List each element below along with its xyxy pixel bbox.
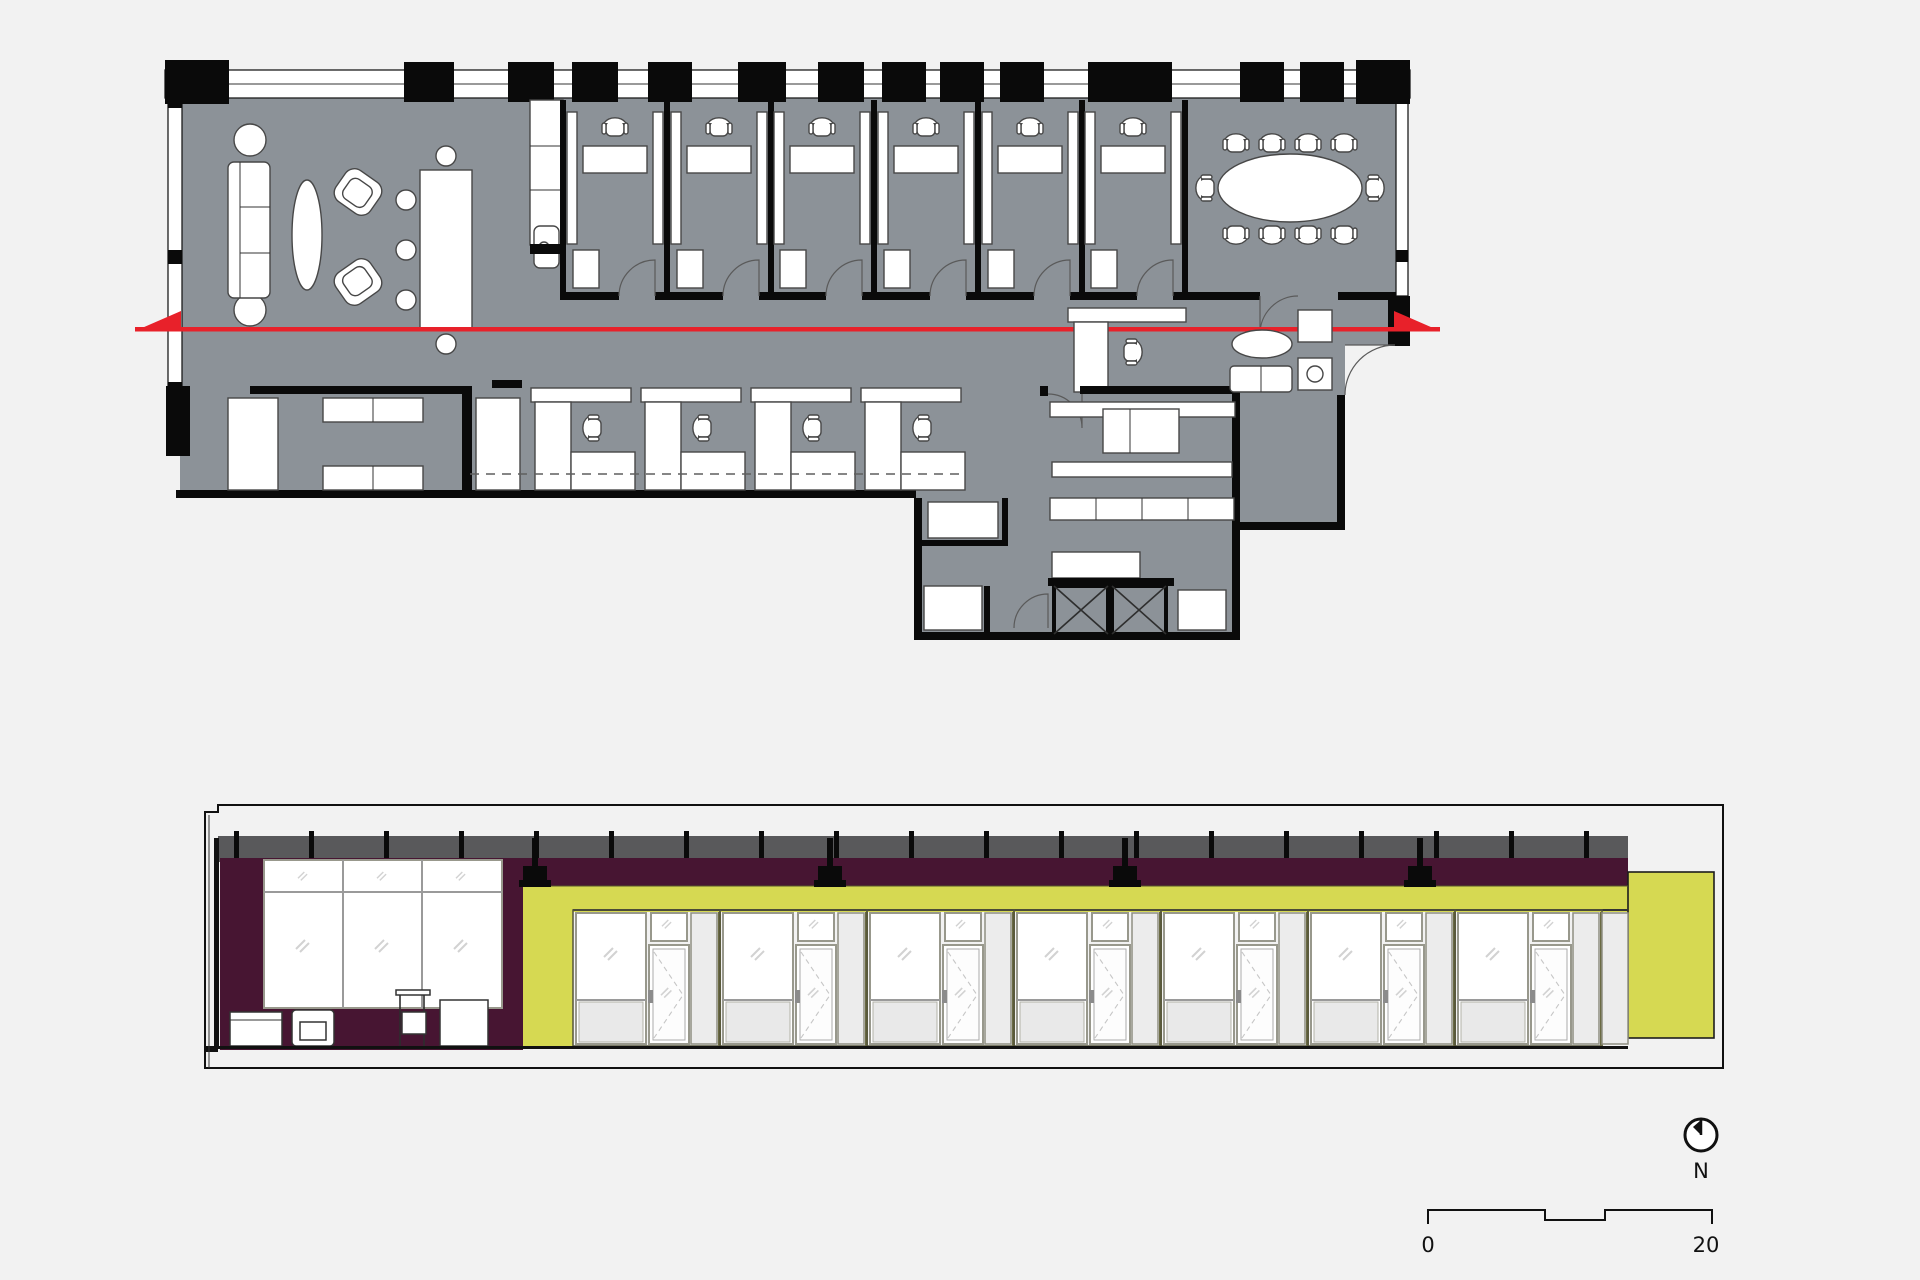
- north-arrow: N: [1685, 1119, 1717, 1183]
- scale-bar-line: [1428, 1210, 1712, 1224]
- scale-end-label: 20: [1693, 1233, 1720, 1257]
- drawing-canvas: N 0 20: [0, 0, 1920, 1280]
- floor-plan: [135, 60, 1440, 640]
- pantry-strip: [530, 100, 563, 268]
- glazed-wall: [264, 860, 502, 1008]
- scale-bar: 0 20: [1421, 1210, 1719, 1257]
- office-front-modules: [573, 910, 1628, 1046]
- scale-start-label: 0: [1421, 1233, 1434, 1257]
- section-drawing: [205, 805, 1723, 1068]
- north-label: N: [1693, 1159, 1709, 1183]
